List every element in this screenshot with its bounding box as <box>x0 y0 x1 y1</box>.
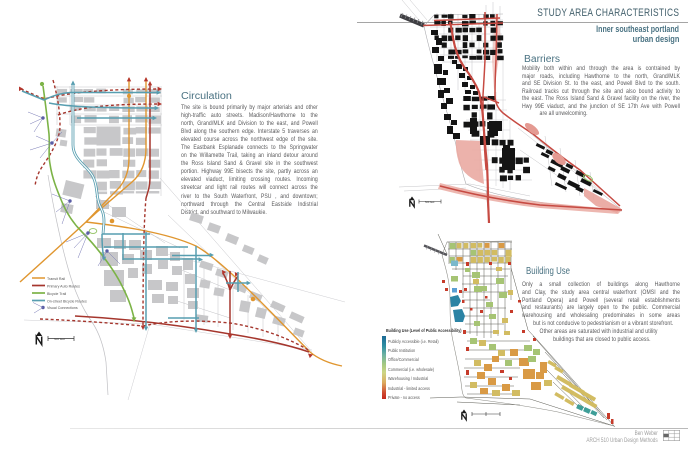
svg-text:Visual Connections: Visual Connections <box>47 306 78 310</box>
svg-text:500 feet: 500 feet <box>425 200 435 204</box>
svg-text:Primary Auto Routes: Primary Auto Routes <box>47 284 80 288</box>
svg-text:Bicycle Trail: Bicycle Trail <box>47 292 66 296</box>
svg-text:500 feet: 500 feet <box>54 337 65 341</box>
svg-text:On-street Bicycle Routes: On-street Bicycle Routes <box>47 299 87 303</box>
svg-text:Transit Rail: Transit Rail <box>47 277 65 281</box>
